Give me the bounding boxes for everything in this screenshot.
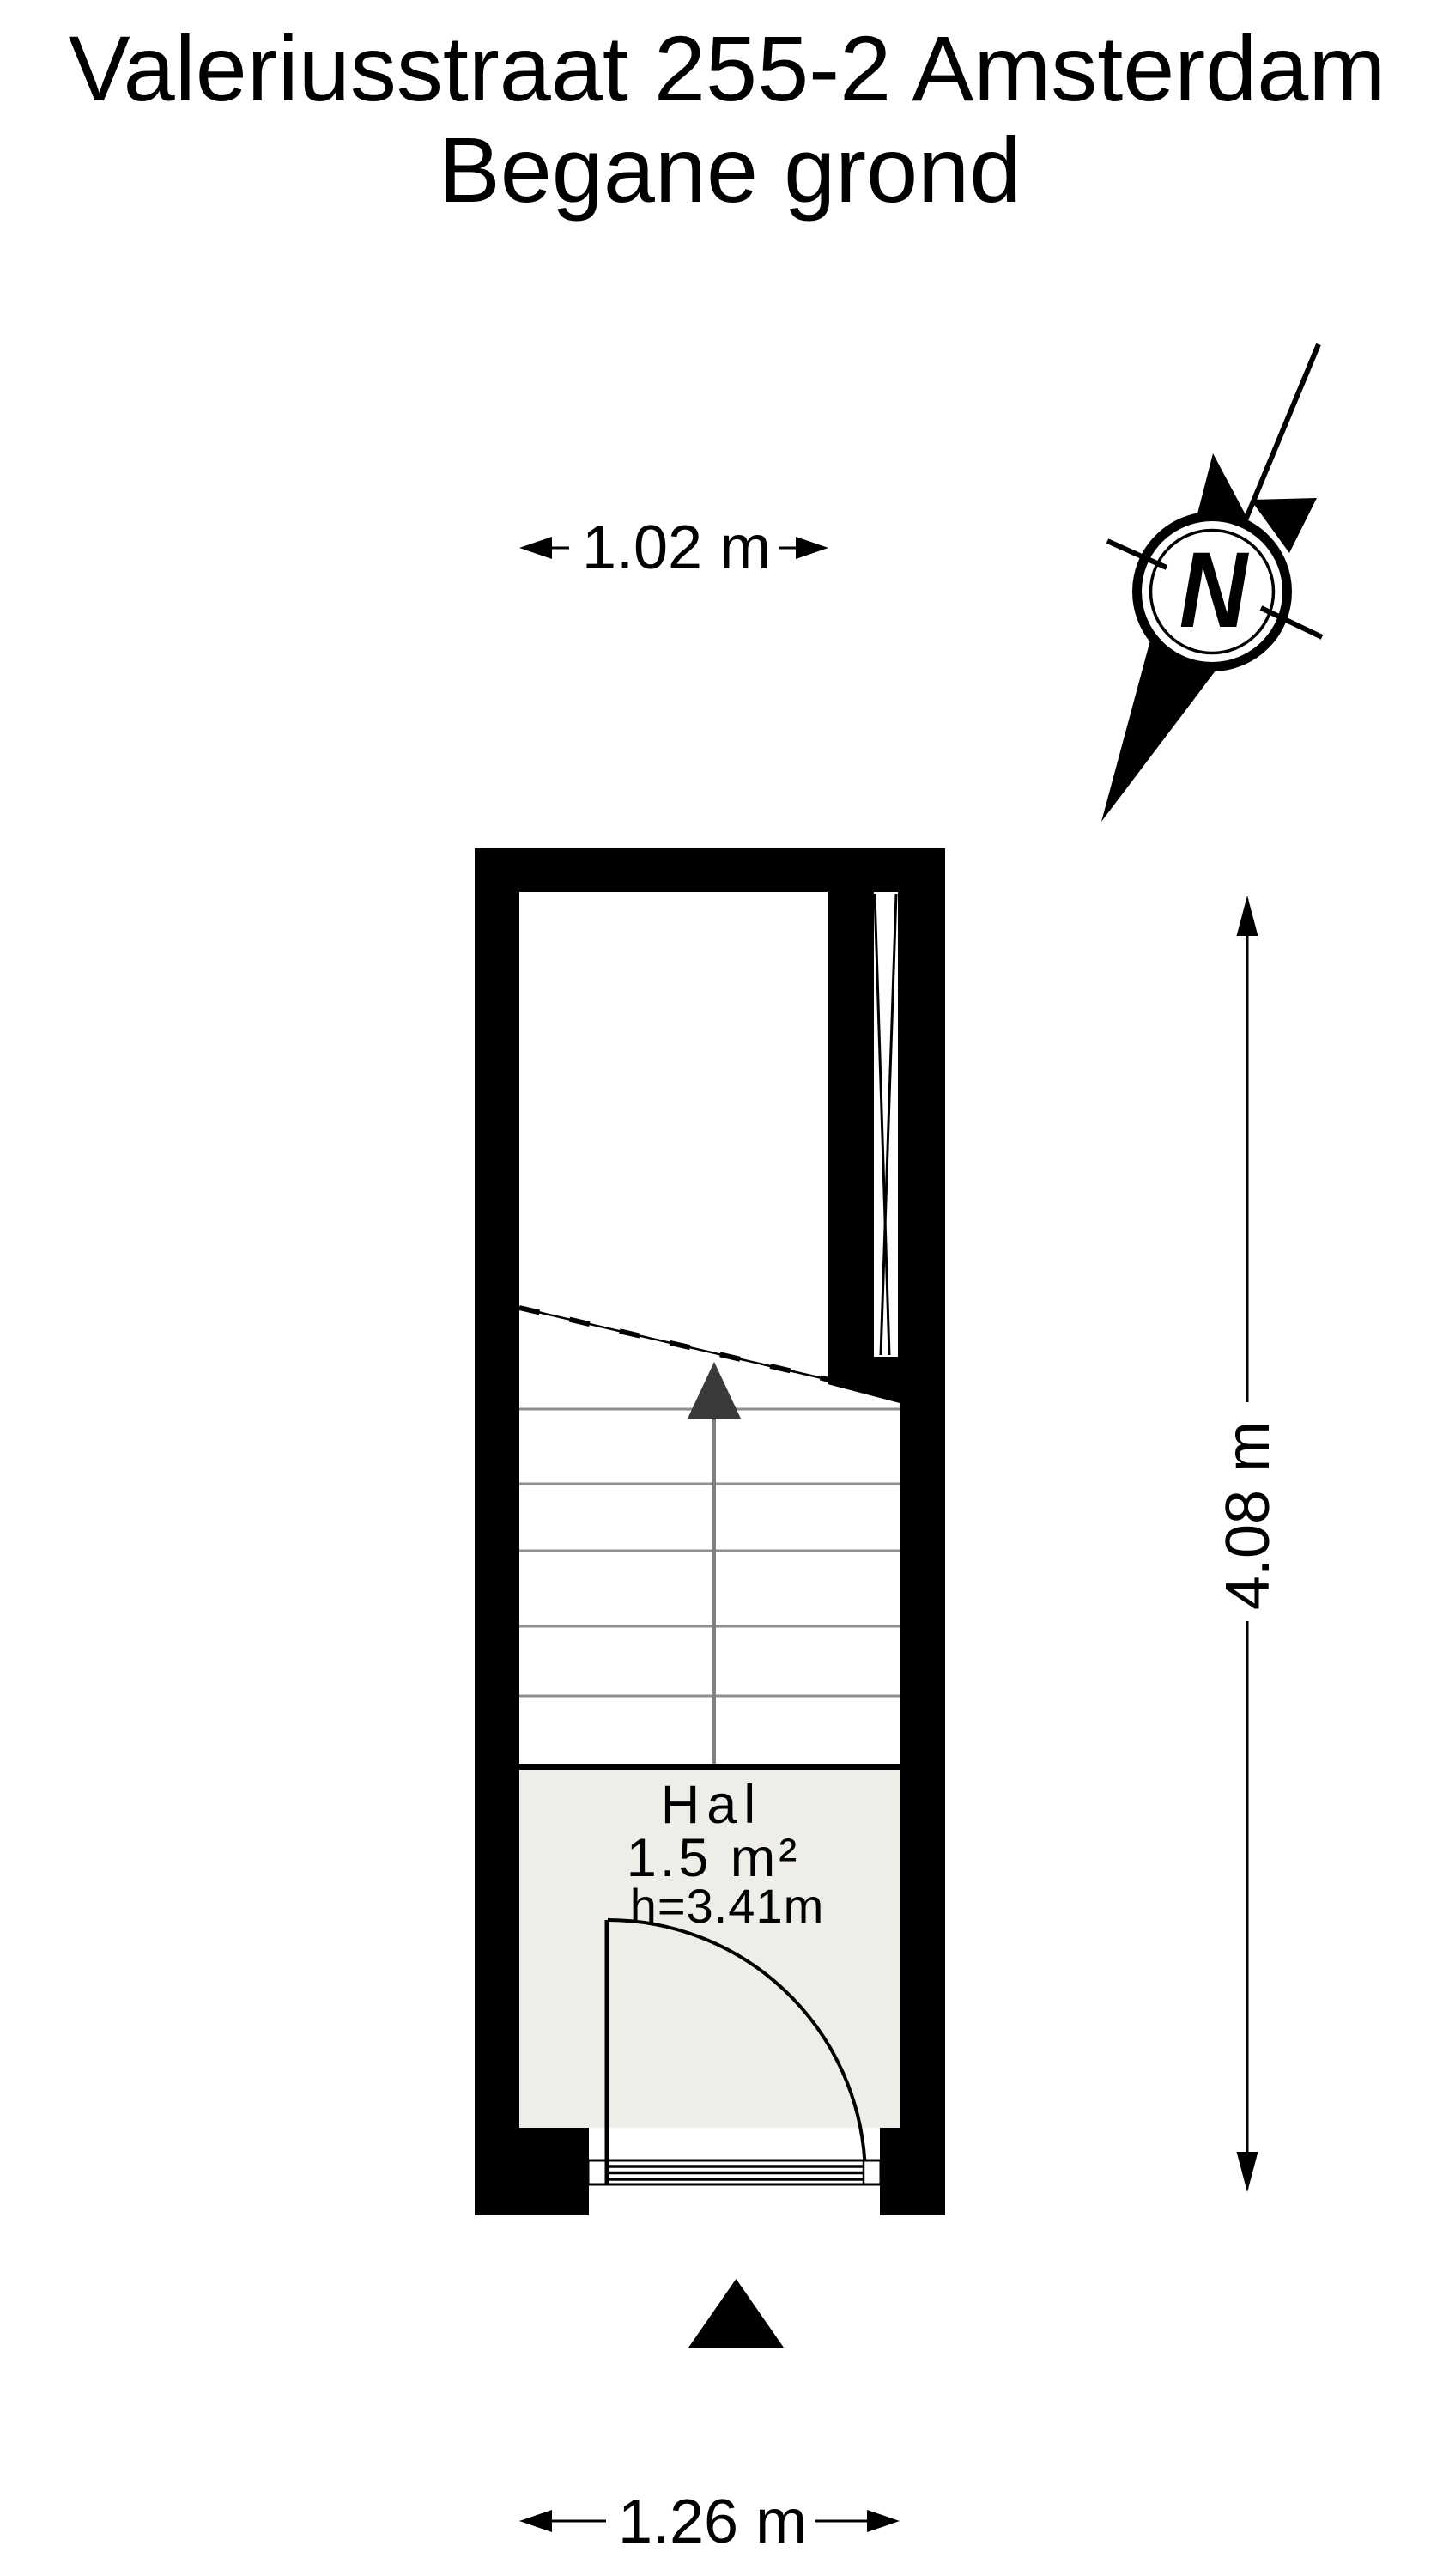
svg-text:1.26 m: 1.26 m [618, 2488, 807, 2556]
svg-text:Begane grond: Begane grond [439, 118, 1022, 222]
svg-text:4.08 m: 4.08 m [1214, 1421, 1282, 1610]
svg-text:Hal: Hal [661, 1775, 763, 1835]
svg-text:1.02 m: 1.02 m [582, 513, 771, 582]
svg-text:N: N [1179, 529, 1250, 649]
svg-text:Valeriusstraat 255-2 Amsterdam: Valeriusstraat 255-2 Amsterdam [69, 16, 1386, 120]
